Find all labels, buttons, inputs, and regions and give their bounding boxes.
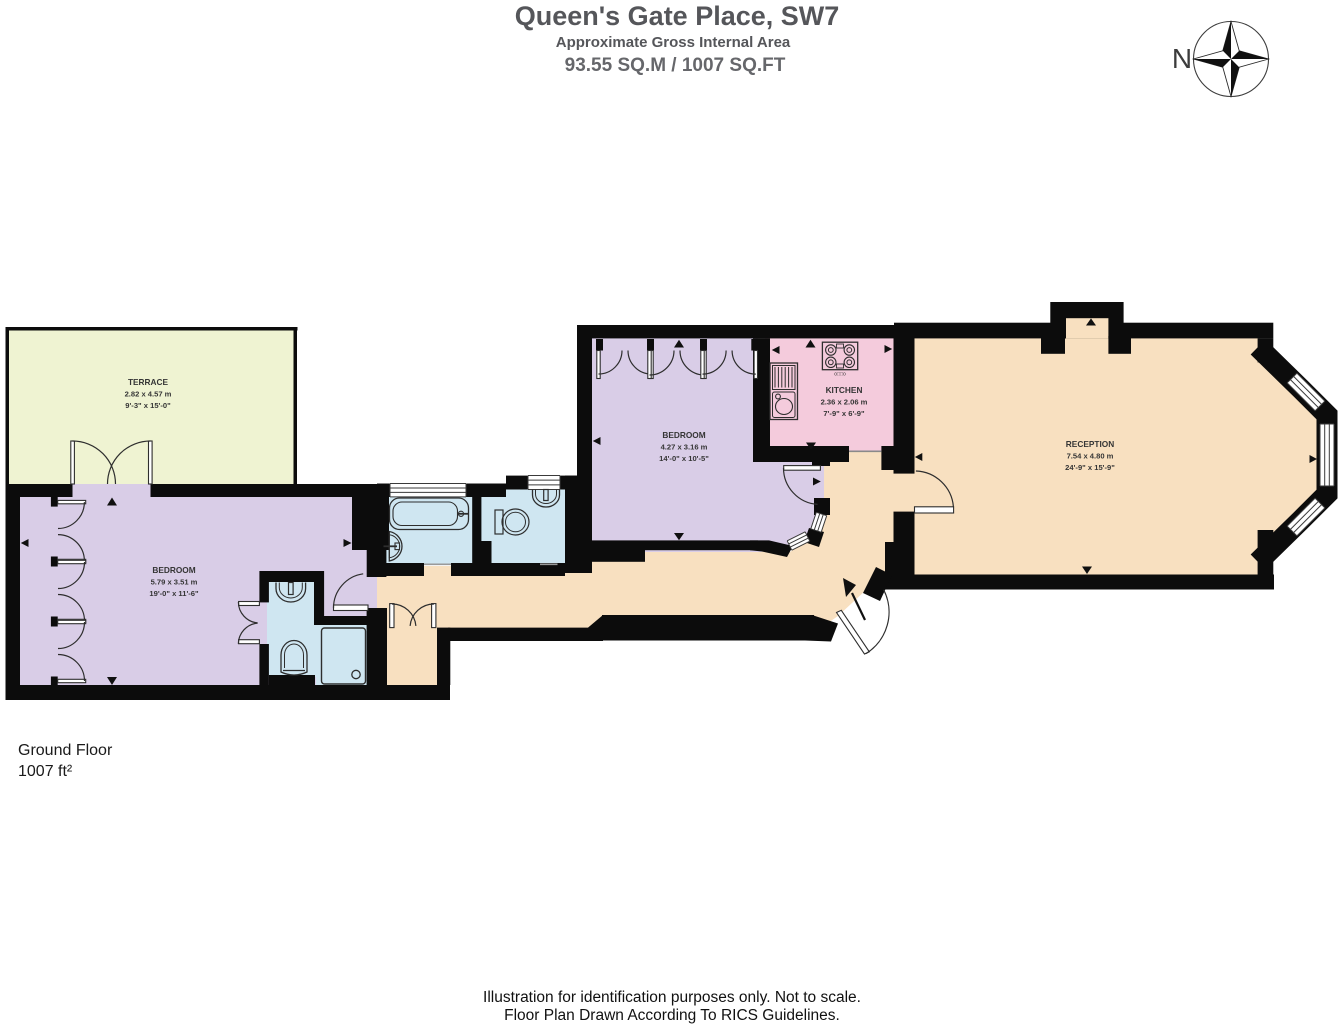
svg-text:7.54 x 4.80 m: 7.54 x 4.80 m [1067,452,1114,461]
svg-text:7'-9" x 6'-9": 7'-9" x 6'-9" [823,409,865,418]
svg-text:BEDROOM: BEDROOM [152,565,195,575]
svg-text:o□□o: o□□o [834,372,846,378]
svg-text:2.36 x 2.06 m: 2.36 x 2.06 m [821,398,868,407]
svg-text:4.27 x 3.16 m: 4.27 x 3.16 m [661,443,708,452]
svg-text:N: N [1172,43,1192,74]
svg-text:5.79 x 3.51 m: 5.79 x 3.51 m [151,578,198,587]
svg-text:9'-3" x 15'-0": 9'-3" x 15'-0" [125,401,171,410]
svg-text:KITCHEN: KITCHEN [826,385,863,395]
svg-text:2.82 x 4.57 m: 2.82 x 4.57 m [125,390,172,399]
svg-text:BEDROOM: BEDROOM [662,430,705,440]
svg-text:19'-0" x 11'-6": 19'-0" x 11'-6" [149,589,199,598]
svg-text:RECEPTION: RECEPTION [1066,439,1114,449]
svg-text:14'-0" x 10'-5": 14'-0" x 10'-5" [659,454,709,463]
svg-text:TERRACE: TERRACE [128,377,169,387]
svg-text:24'-9" x 15'-9": 24'-9" x 15'-9" [1065,463,1115,472]
